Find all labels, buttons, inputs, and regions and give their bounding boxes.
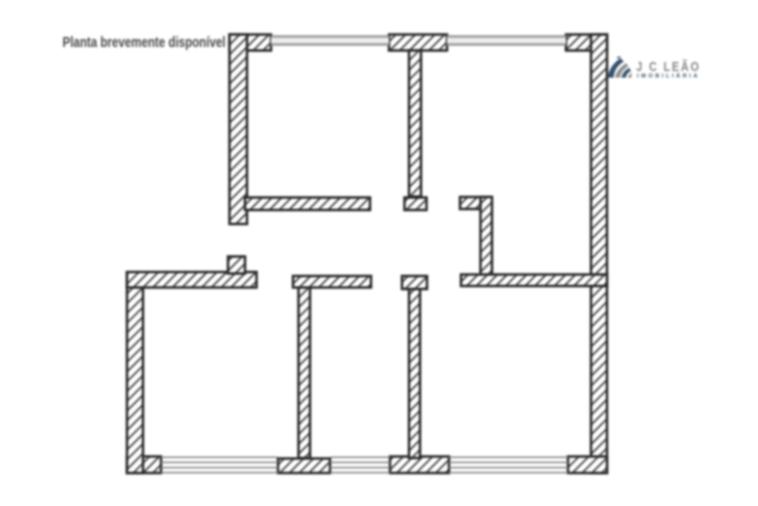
svg-text:J C LEÃO: J C LEÃO [636, 59, 701, 74]
svg-text:Planta brevemente disponível: Planta brevemente disponível [63, 34, 226, 51]
svg-text:IMOBILIÁRIA: IMOBILIÁRIA [637, 72, 700, 79]
